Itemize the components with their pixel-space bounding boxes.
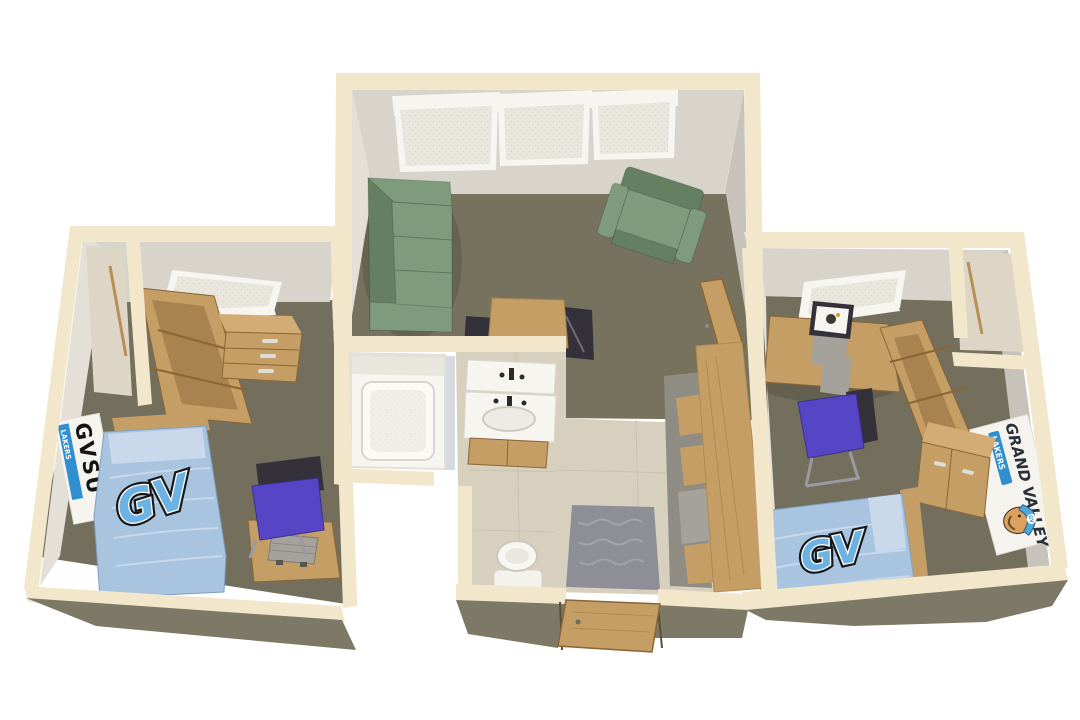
entry-door — [558, 600, 662, 652]
bathtub — [352, 356, 444, 468]
dresser-left — [218, 314, 302, 382]
shower-glass — [446, 356, 455, 470]
floorplan-render: GVSU LAKERS GRAND VALLEY LAKERS — [0, 0, 1080, 720]
floorplan-svg: GVSU LAKERS GRAND VALLEY LAKERS — [0, 0, 1080, 720]
hallway-rug — [566, 505, 660, 590]
sink-vanity — [464, 360, 556, 468]
bed-left: GV GV — [94, 412, 226, 598]
sofa — [368, 178, 452, 332]
dresser-right — [916, 422, 996, 518]
computer-tower — [820, 354, 852, 396]
bathroom-hallway — [348, 342, 768, 596]
door-handle — [576, 620, 581, 625]
